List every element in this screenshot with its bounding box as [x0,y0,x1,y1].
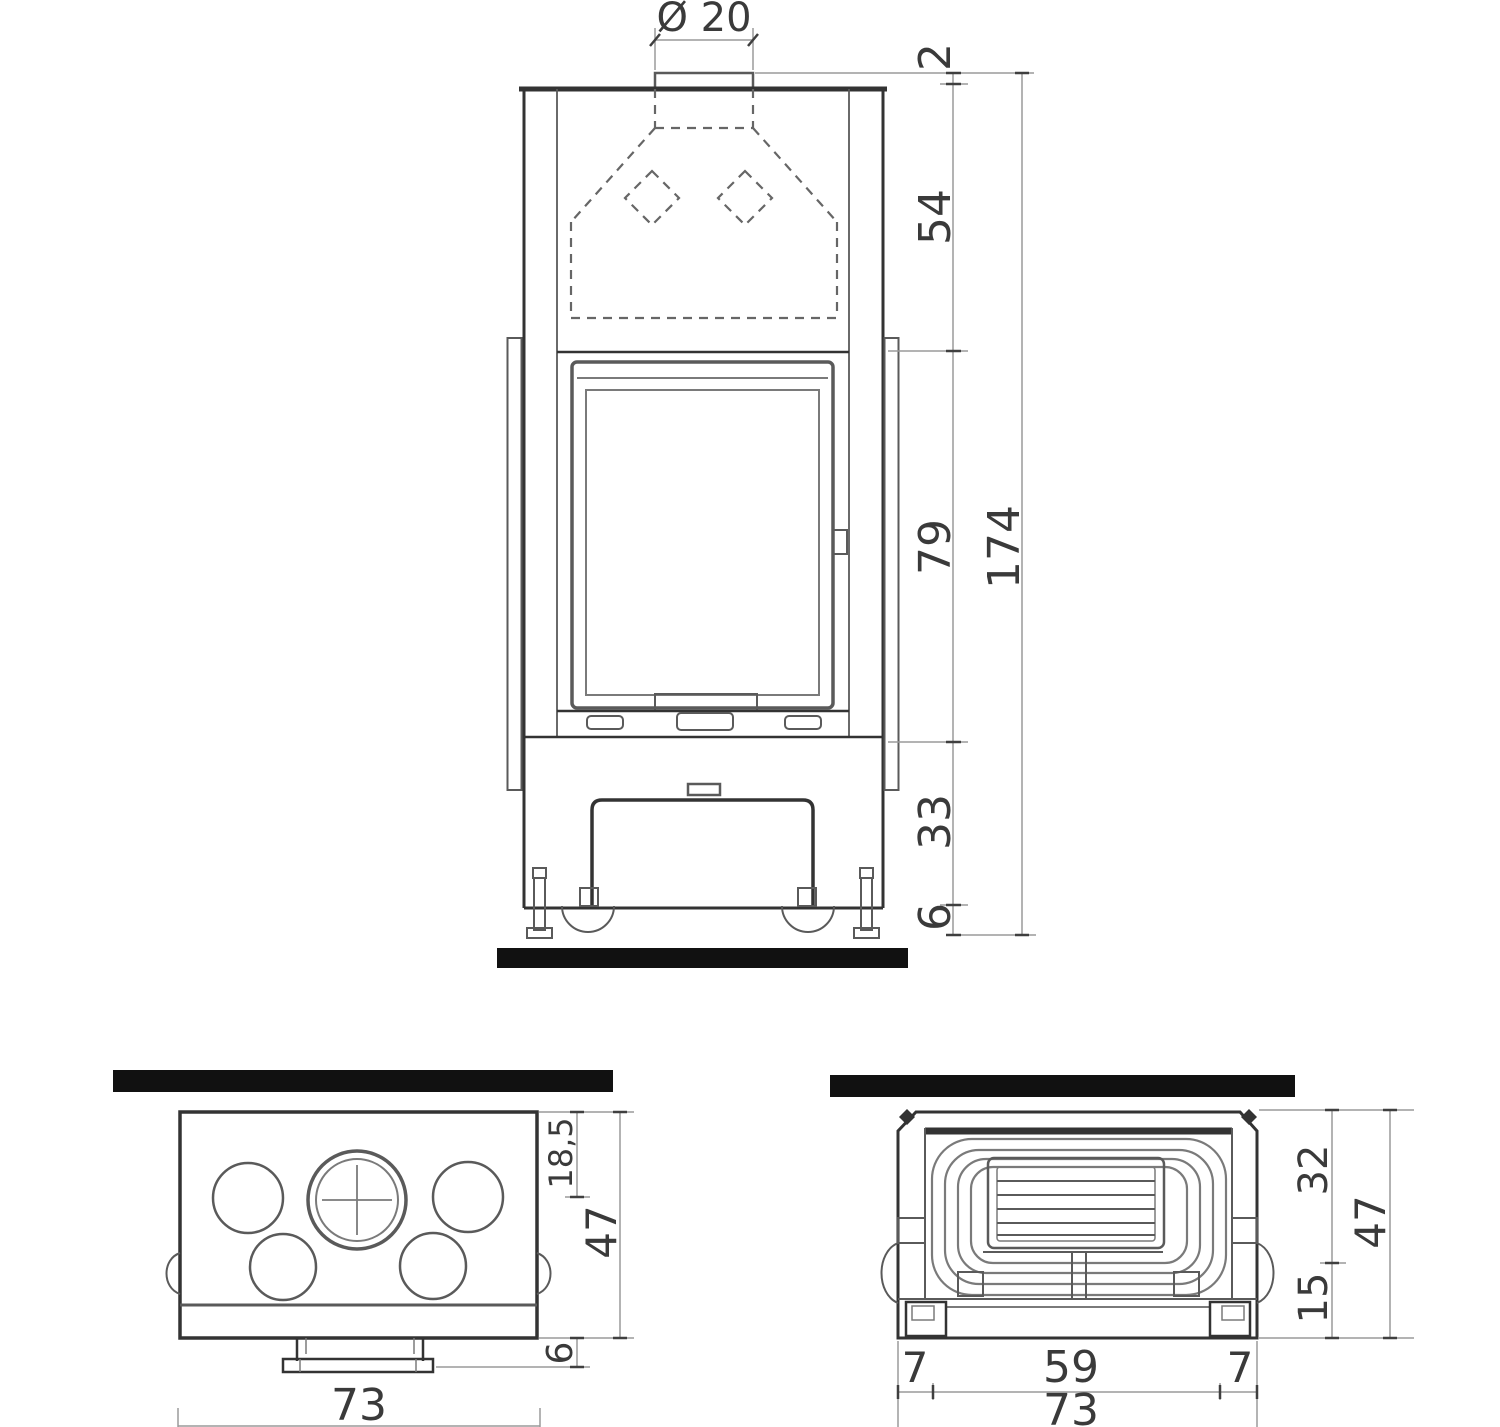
rear-foot-left [906,1302,946,1336]
smoke-hood-dashed-outline [571,89,837,318]
corner-mark-right [1241,1109,1257,1125]
side-tab-right [537,1253,551,1294]
ash-door-opening [592,800,813,908]
dim-label-32: 32 [1291,1145,1337,1196]
front-view: Ø 20 2 54 79 33 6 174 [497,0,1036,968]
damper-diamond-right [718,171,772,225]
vent-slot-center [677,713,733,730]
dim-label-18-5: 18,5 [542,1117,580,1188]
corner-mark-left [899,1109,915,1125]
rear-grille [988,1158,1164,1248]
adjustable-foot-left [527,868,552,938]
dim-label-7-left: 7 [902,1343,929,1392]
dim-label-6-top: 6 [540,1342,581,1365]
dim-label-174: 174 [979,505,1030,589]
top-view: 18,5 47 6 73 [113,1070,634,1427]
rear-body-outline [898,1112,1257,1338]
dim-label-73-rear: 73 [1043,1385,1099,1427]
side-bracket-left [898,1218,925,1243]
flue-outlet [308,1151,406,1249]
side-bulge-left [882,1243,899,1303]
flue-diameter-dimension: Ø 20 [650,0,758,70]
dim-label-2: 2 [910,43,961,71]
side-tab-left [167,1253,181,1294]
side-bulge-right [1257,1243,1274,1303]
dim-label-54: 54 [910,189,961,245]
vent-slot-left [587,716,623,729]
rear-width-dimensions: 7 59 7 73 [898,1341,1257,1427]
rear-foot-right [1210,1302,1250,1336]
dim-label-33: 33 [910,794,961,850]
wall-line-rear-view [830,1075,1295,1097]
floor-line-front [497,948,908,968]
door-handle-notch [833,530,847,554]
dim-label-47-rear: 47 [1346,1195,1395,1248]
dim-label-73-top: 73 [331,1380,387,1427]
dim-label-15: 15 [1291,1273,1337,1324]
adjustable-foot-right [854,868,879,938]
foot-bracket-right [782,888,834,932]
convection-outlet-front-left [250,1234,316,1300]
fireplace-dimension-drawing: Ø 20 2 54 79 33 6 174 [0,0,1500,1427]
dim-label-6-front: 6 [910,903,961,931]
top-view-dimensions: 18,5 47 6 73 [178,1112,634,1427]
side-rail-right [885,338,899,790]
side-rail-left [508,338,522,790]
wall-line-top-view [113,1070,613,1092]
convection-outlet-front-right [400,1233,466,1299]
technical-drawing-page: Ø 20 2 54 79 33 6 174 [0,0,1500,1427]
convection-outlet-back-right [433,1162,503,1232]
glass-pane [586,390,819,695]
ash-door-handle [688,784,720,795]
convection-outlet-back-left [213,1163,283,1233]
fire-door-frame [572,362,833,708]
side-bracket-right [1232,1218,1257,1243]
foot-bracket-left [562,888,614,932]
rear-height-dimensions: 32 15 47 [1259,1110,1414,1338]
front-handle-bracket [283,1338,433,1372]
dim-label-79: 79 [910,519,961,575]
flue-diameter-label: Ø 20 [656,0,751,41]
vent-slot-right [785,716,821,729]
dim-label-7-right: 7 [1227,1343,1254,1392]
rear-view: 32 15 47 7 59 7 73 [830,1075,1414,1427]
dim-label-47-top: 47 [577,1205,626,1258]
damper-diamond-left [625,171,679,225]
